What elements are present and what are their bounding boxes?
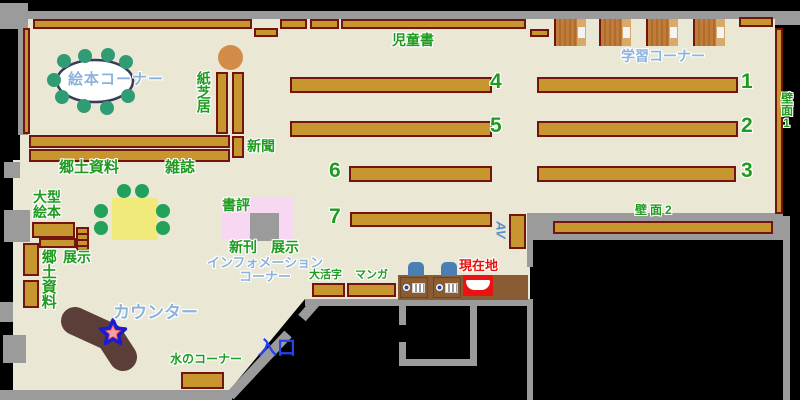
wall-under-terminals bbox=[305, 299, 533, 306]
wall-small-room-bottom bbox=[399, 359, 477, 366]
shelf-row-6 bbox=[349, 166, 492, 182]
label-manga: マンガ bbox=[355, 270, 388, 282]
desk-chair bbox=[670, 27, 677, 38]
wall-small-room-right bbox=[470, 306, 477, 366]
study-desk bbox=[599, 19, 633, 46]
wall-band-corner bbox=[527, 240, 533, 267]
round-stool bbox=[218, 45, 243, 70]
terminal-chair bbox=[441, 262, 457, 276]
shelf-top-4 bbox=[310, 19, 339, 29]
wall-right-lower bbox=[783, 216, 790, 400]
desk-side bbox=[716, 19, 725, 46]
shelf-beside-desks bbox=[530, 29, 549, 37]
shelf-top-2 bbox=[254, 28, 278, 37]
new-book-display-stand bbox=[250, 213, 279, 241]
shelf-number-5: 5 bbox=[490, 115, 502, 137]
label-water-corner: 水のコーナー bbox=[170, 353, 242, 366]
wall-small-room-left-a bbox=[399, 306, 406, 325]
desk-top bbox=[693, 19, 716, 46]
desk-chair bbox=[623, 27, 630, 38]
shelf-top-5 bbox=[341, 19, 526, 29]
label-local-materials-top: 郷土資料 bbox=[59, 160, 119, 176]
shelf-number-7: 7 bbox=[329, 206, 341, 228]
label-counter: カウンター bbox=[113, 304, 198, 322]
shelf-manga bbox=[347, 283, 396, 297]
shelf-water-corner bbox=[181, 372, 224, 389]
terminal-chair bbox=[408, 262, 424, 276]
shelf-row-2 bbox=[537, 121, 738, 137]
wall-left-seg3 bbox=[0, 302, 13, 322]
wall-bottom-strip bbox=[0, 390, 232, 400]
label-large-print: 大活字 bbox=[309, 270, 342, 282]
wall-left-seg1 bbox=[4, 162, 20, 178]
shelf-large-picture-books-1 bbox=[32, 222, 75, 238]
shelf-top-3 bbox=[280, 19, 307, 29]
label-study-corner: 学習コーナー bbox=[621, 49, 705, 64]
wall-left-seg4 bbox=[3, 335, 26, 363]
shelf-row-7 bbox=[350, 212, 492, 227]
chair bbox=[117, 184, 131, 198]
label-local-materials-left: 郷土資料 bbox=[40, 249, 56, 309]
study-desk bbox=[693, 19, 727, 46]
shelf-row-5 bbox=[290, 121, 492, 137]
shelf-number-2: 2 bbox=[741, 115, 753, 137]
label-display-center: 展示 bbox=[271, 240, 299, 255]
desk-side bbox=[577, 19, 586, 46]
shelf-kamishibai-2 bbox=[232, 72, 244, 134]
label-magazines: 雑誌 bbox=[165, 160, 195, 176]
label-information-line2: コーナー bbox=[205, 270, 325, 284]
desk-chair bbox=[578, 27, 585, 38]
label-large-picture-books: 大型絵本 bbox=[33, 190, 65, 219]
shelf-number-4: 4 bbox=[490, 71, 502, 93]
library-floor-map: 絵本コーナー 紙芝居 新聞 郷土資料 雑誌 児童書 学習コーナー 壁面1 壁面2… bbox=[0, 0, 800, 400]
opac-terminal bbox=[433, 277, 461, 298]
label-new-books: 新刊 bbox=[229, 240, 257, 255]
shelf-av bbox=[509, 214, 526, 249]
shelf-local-materials-1 bbox=[23, 243, 39, 276]
label-children-books: 児童書 bbox=[392, 33, 434, 48]
shelf-kamishibai-1 bbox=[216, 72, 228, 134]
reading-table bbox=[112, 198, 158, 240]
label-display-left: 展示 bbox=[63, 250, 91, 265]
label-av: AV bbox=[494, 221, 508, 238]
current-location-marker bbox=[463, 275, 493, 296]
chair bbox=[156, 221, 170, 235]
shelf-top-6 bbox=[739, 17, 773, 27]
label-current-location: 現在地 bbox=[459, 259, 498, 273]
terminal-knob bbox=[403, 284, 410, 291]
chair bbox=[94, 204, 108, 218]
wall-top bbox=[20, 11, 800, 19]
shelf-display-rack bbox=[76, 227, 89, 251]
shelf-large-print bbox=[312, 283, 345, 297]
shelf-number-6: 6 bbox=[329, 160, 341, 182]
label-entrance: 入口 bbox=[258, 339, 296, 359]
study-desk bbox=[646, 19, 680, 46]
chair bbox=[94, 221, 108, 235]
label-newspaper: 新聞 bbox=[247, 139, 275, 154]
terminal-keyboard bbox=[412, 283, 425, 293]
shelf-top-1 bbox=[33, 19, 252, 29]
desk-side bbox=[622, 19, 631, 46]
shelf-row-1 bbox=[537, 77, 738, 93]
label-picture-book-corner: 絵本コーナー bbox=[68, 72, 164, 88]
shelf-number-1: 1 bbox=[741, 71, 753, 93]
shelf-newspaper bbox=[232, 136, 244, 158]
label-information-line1: インフォメーション bbox=[205, 256, 325, 270]
label-book-review: 書評 bbox=[222, 198, 250, 213]
shelf-row-4 bbox=[290, 77, 492, 93]
shelf-row-3 bbox=[537, 166, 736, 182]
label-kamishibai: 紙芝居 bbox=[196, 71, 211, 113]
current-location-dish bbox=[466, 280, 490, 290]
chair bbox=[156, 204, 170, 218]
chair bbox=[135, 184, 149, 198]
shelf-left-vertical bbox=[23, 28, 30, 134]
desk-top bbox=[554, 19, 577, 46]
shelf-wall-2 bbox=[553, 221, 773, 234]
wall-top-right-corner bbox=[775, 11, 800, 25]
label-wall-2: 壁面2 bbox=[635, 204, 675, 217]
label-wall-1: 壁面1 bbox=[780, 92, 793, 130]
desk-side bbox=[669, 19, 678, 46]
study-desk bbox=[554, 19, 588, 46]
wall-left-seg2 bbox=[4, 210, 30, 242]
desk-chair bbox=[717, 27, 724, 38]
desk-top bbox=[646, 19, 669, 46]
desk-top bbox=[599, 19, 622, 46]
shelf-number-3: 3 bbox=[741, 160, 753, 182]
terminal-knob bbox=[436, 284, 443, 291]
shelf-local-materials-2 bbox=[23, 280, 39, 308]
wall-top-left-block bbox=[0, 3, 28, 29]
opac-terminal bbox=[400, 277, 428, 298]
shelf-ehon-bottom-1 bbox=[29, 135, 230, 148]
terminal-keyboard bbox=[445, 283, 458, 293]
label-information-corner: インフォメーション コーナー bbox=[205, 256, 325, 283]
wall-corridor-left bbox=[527, 306, 533, 400]
shelf-large-picture-books-2 bbox=[39, 238, 76, 248]
